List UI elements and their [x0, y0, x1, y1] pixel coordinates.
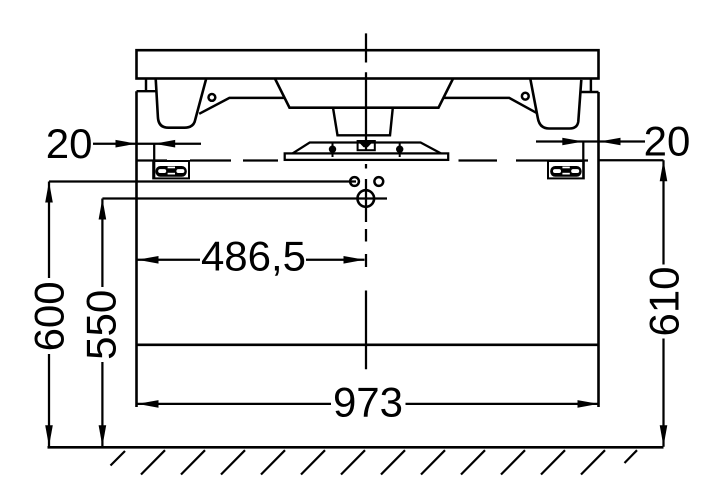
svg-text:486,5: 486,5 — [201, 233, 306, 280]
svg-text:600: 600 — [25, 281, 72, 351]
svg-text:20: 20 — [644, 117, 691, 164]
svg-text:973: 973 — [333, 379, 403, 426]
svg-text:550: 550 — [78, 290, 125, 360]
svg-text:610: 610 — [640, 266, 687, 336]
svg-text:20: 20 — [46, 120, 93, 167]
